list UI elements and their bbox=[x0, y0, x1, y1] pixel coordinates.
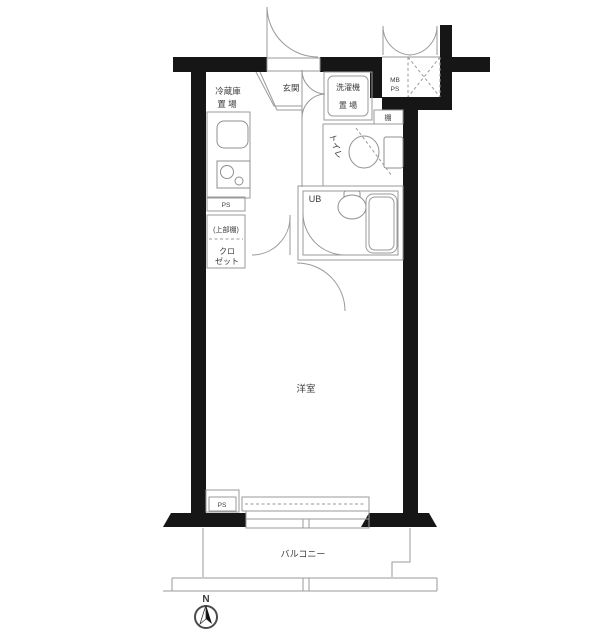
stove-burner-large bbox=[221, 166, 234, 179]
kitchen-area bbox=[207, 112, 250, 211]
floor-plan-drawing: 冷蔵庫 置 場 玄関 洗濯機 置 場 MB PS 棚 トイレ UB PS (上部… bbox=[0, 0, 616, 636]
meterbox-x-pattern bbox=[408, 57, 440, 97]
washer-outer-box bbox=[324, 72, 372, 120]
entrance-door-sill bbox=[267, 58, 320, 71]
compass bbox=[195, 605, 217, 628]
balcony-rail-posts bbox=[172, 578, 437, 591]
wall-bottom-right bbox=[361, 513, 437, 527]
walls bbox=[163, 25, 490, 527]
washer-inner-box bbox=[328, 76, 368, 116]
label-meter-box-line2: PS bbox=[391, 86, 400, 93]
label-closet-line2: ゼット bbox=[215, 256, 239, 266]
label-shelf: 棚 bbox=[385, 113, 392, 122]
room-door-swing-arc bbox=[297, 263, 345, 311]
label-bottom-pipe-space: PS bbox=[218, 502, 227, 509]
bathtub-inner bbox=[369, 197, 394, 250]
label-entrance: 玄関 bbox=[282, 83, 299, 93]
label-washer-line2: 置 場 bbox=[339, 100, 357, 110]
wall-meterbox-right bbox=[440, 25, 452, 110]
wall-top-right-stub bbox=[452, 57, 490, 72]
toilet-tank bbox=[384, 137, 403, 168]
label-unit-bath: UB bbox=[309, 194, 322, 204]
kitchen-sink bbox=[217, 121, 248, 148]
balcony-right-edge bbox=[392, 528, 410, 577]
washroom-door-arc-upper bbox=[302, 70, 325, 94]
label-compass-north: N bbox=[202, 594, 209, 605]
label-refrigerator-line1: 冷蔵庫 bbox=[215, 86, 241, 96]
floor-plan-image: 冷蔵庫 置 場 玄関 洗濯機 置 場 MB PS 棚 トイレ UB PS (上部… bbox=[0, 0, 616, 636]
label-western-room: 洋室 bbox=[296, 383, 315, 395]
stove-burner-small bbox=[235, 177, 243, 185]
wall-right bbox=[403, 108, 418, 513]
washbasin bbox=[338, 195, 366, 219]
balcony-area bbox=[163, 528, 437, 591]
entrance-door-swing-arc bbox=[267, 7, 318, 57]
label-closet-line1: クロ bbox=[219, 247, 235, 256]
label-toilet: トイレ bbox=[327, 132, 344, 159]
meterbox-door-right-arc bbox=[409, 26, 437, 55]
label-balcony: バルコニー bbox=[281, 549, 326, 559]
label-meter-box-line1: MB bbox=[390, 77, 400, 84]
wall-bottom-left bbox=[163, 513, 246, 527]
hall-door-swing-arc bbox=[252, 217, 290, 255]
balcony-window-sashes bbox=[246, 519, 369, 528]
label-refrigerator-line2: 置 場 bbox=[217, 99, 237, 109]
meterbox-door-left-arc bbox=[383, 26, 411, 55]
wall-left bbox=[191, 72, 206, 513]
label-upper-shelf: (上部棚) bbox=[213, 225, 239, 234]
bathtub-outer bbox=[366, 194, 397, 253]
label-washer-line1: 洗濯機 bbox=[336, 82, 360, 92]
washroom-door-arc-lower bbox=[302, 94, 325, 118]
wall-top-left bbox=[173, 57, 267, 72]
wall-top-middle bbox=[320, 57, 382, 72]
label-kitchen-pipe-space: PS bbox=[222, 202, 231, 209]
bath-door-swing-arc bbox=[303, 213, 345, 255]
